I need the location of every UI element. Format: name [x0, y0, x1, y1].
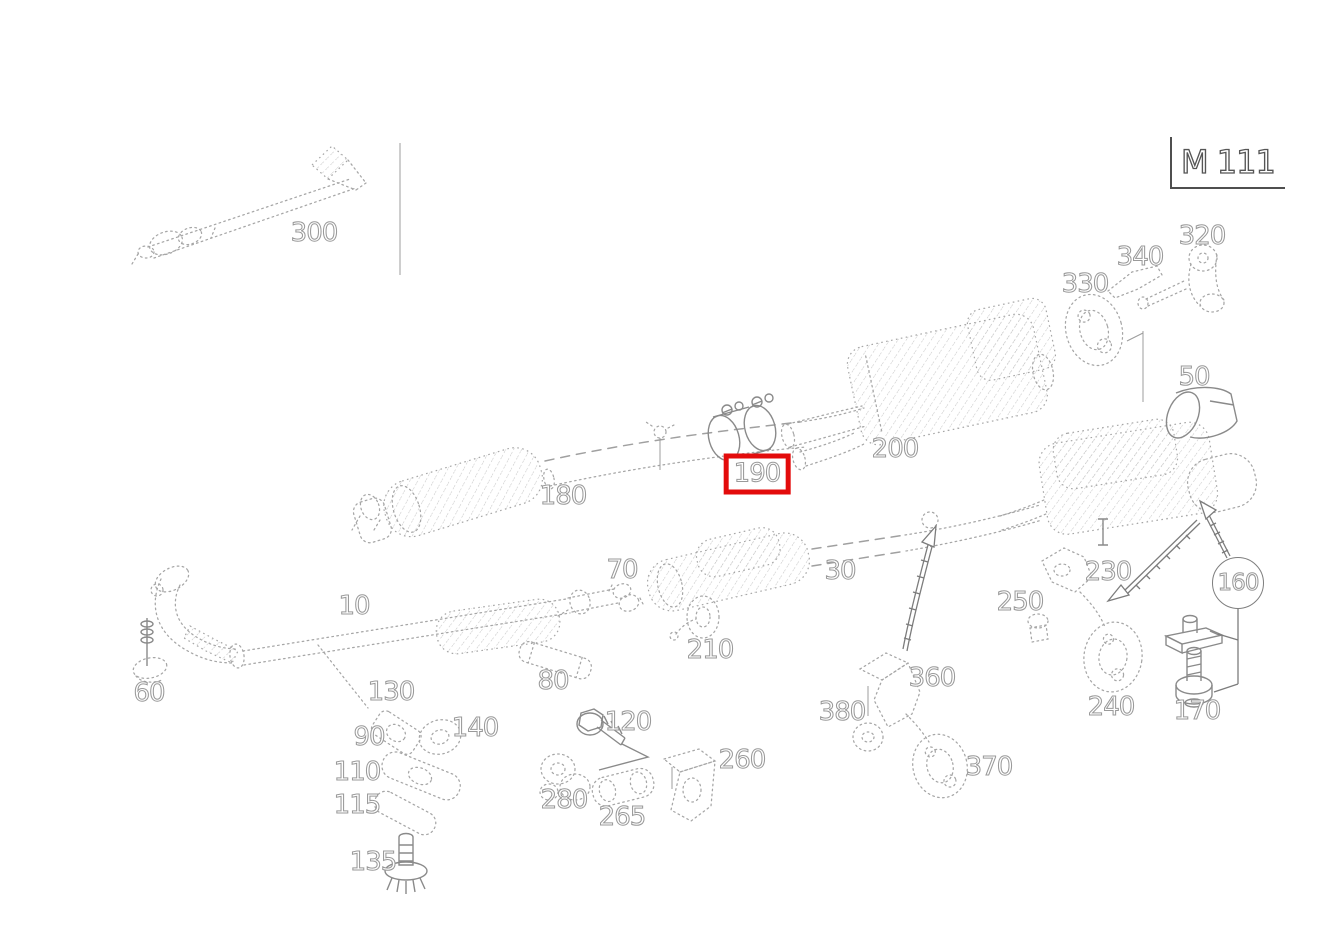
part-label-170[interactable]: 170: [1174, 698, 1221, 724]
engine-model-badge: M 111: [1170, 137, 1285, 189]
part-label-70[interactable]: 70: [606, 557, 637, 583]
engine-model-label: M 111: [1181, 146, 1275, 178]
part-label-10[interactable]: 10: [338, 593, 369, 619]
part-label-50[interactable]: 50: [1178, 364, 1209, 390]
part-label-110[interactable]: 110: [334, 759, 381, 785]
part-label-130[interactable]: 130: [368, 679, 415, 705]
fastener-170-drawing: [1166, 616, 1222, 708]
part-label-200[interactable]: 200: [872, 436, 919, 462]
center-muffler-200-drawing: [790, 296, 1066, 471]
diagram-line-art: [0, 0, 1326, 938]
part-label-140[interactable]: 140: [452, 715, 499, 741]
part-label-90[interactable]: 90: [353, 724, 384, 750]
part-label-160[interactable]: 160: [1212, 557, 1264, 609]
part-label-135[interactable]: 135: [350, 849, 397, 875]
fasteners-bottom-left-drawing: [131, 618, 464, 894]
part-label-210[interactable]: 210: [687, 637, 734, 663]
part-label-80[interactable]: 80: [537, 668, 568, 694]
part-label-380[interactable]: 380: [819, 699, 866, 725]
part-label-300[interactable]: 300: [291, 220, 338, 246]
part-label-260[interactable]: 260: [719, 747, 766, 773]
part-label-230[interactable]: 230: [1085, 559, 1132, 585]
part-label-115[interactable]: 115: [334, 792, 381, 818]
exhaust-parts-diagram: M 111 3003203403305020019018070302301602…: [0, 0, 1326, 938]
part-label-190-selected[interactable]: 190: [724, 454, 791, 495]
part-label-360[interactable]: 360: [909, 665, 956, 691]
part-label-265[interactable]: 265: [599, 804, 646, 830]
part-label-330[interactable]: 330: [1062, 271, 1109, 297]
part-label-320[interactable]: 320: [1179, 223, 1226, 249]
part-label-370[interactable]: 370: [966, 754, 1013, 780]
part-label-340[interactable]: 340: [1117, 244, 1164, 270]
part-label-250[interactable]: 250: [997, 589, 1044, 615]
part-label-120[interactable]: 120: [605, 709, 652, 735]
part-label-30[interactable]: 30: [824, 558, 855, 584]
center-pipe-30-drawing: [568, 505, 1042, 640]
part-label-180[interactable]: 180: [540, 483, 587, 509]
part-label-280[interactable]: 280: [541, 787, 588, 813]
part-label-60[interactable]: 60: [133, 680, 164, 706]
part-label-240[interactable]: 240: [1088, 694, 1135, 720]
